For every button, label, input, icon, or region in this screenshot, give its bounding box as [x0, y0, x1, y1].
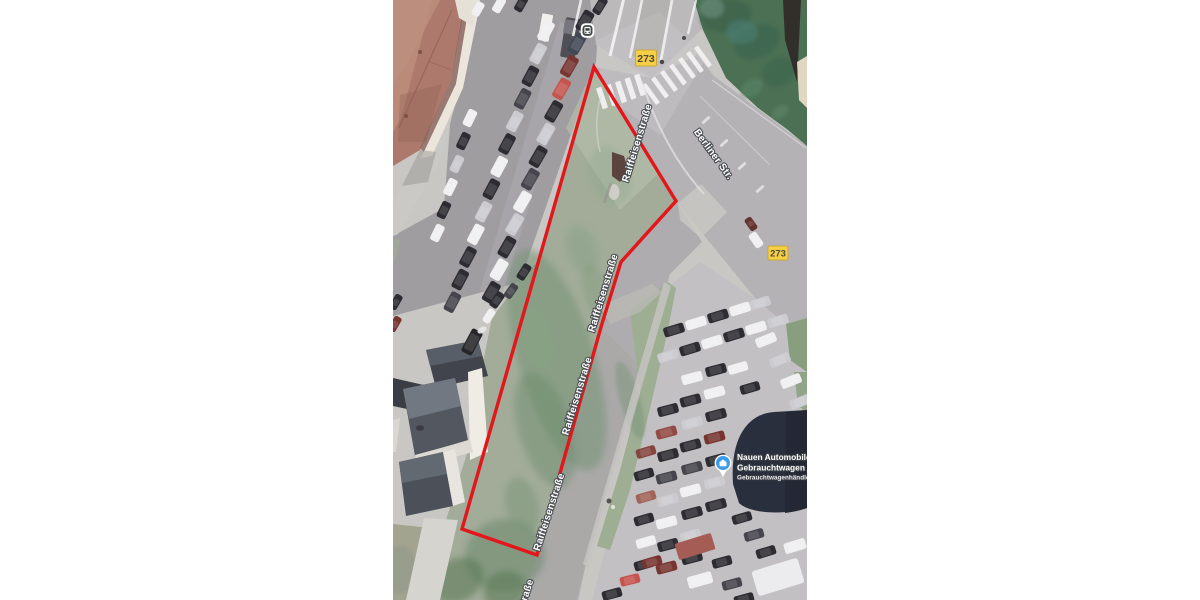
- svg-text:Gebrauchtwagenhändle: Gebrauchtwagenhändle: [737, 475, 810, 482]
- svg-text:Nauen Automobile: Nauen Automobile: [737, 452, 811, 462]
- svg-text:Gebrauchtwagen A: Gebrauchtwagen A: [737, 463, 813, 473]
- svg-text:273: 273: [637, 53, 655, 65]
- svg-text:273: 273: [770, 248, 786, 259]
